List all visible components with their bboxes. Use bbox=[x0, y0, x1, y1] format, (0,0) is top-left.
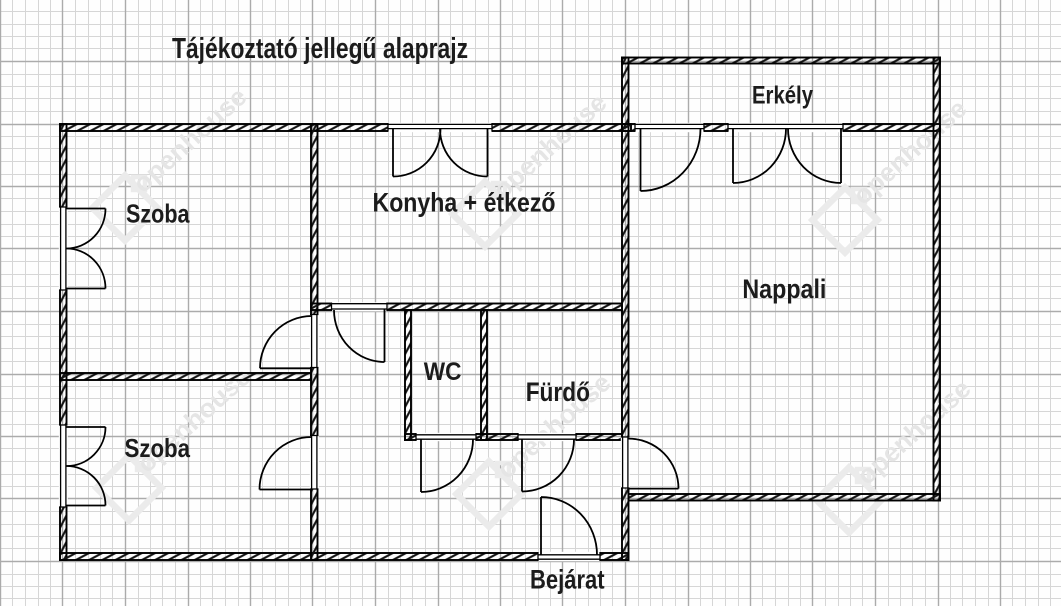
svg-text:Erkély: Erkély bbox=[752, 81, 813, 109]
svg-text:WC: WC bbox=[424, 358, 462, 386]
svg-text:Bejárat: Bejárat bbox=[530, 565, 605, 595]
svg-text:Konyha + étkező: Konyha + étkező bbox=[373, 188, 556, 218]
svg-text:Fürdő: Fürdő bbox=[526, 377, 590, 407]
svg-text:Szoba: Szoba bbox=[125, 433, 191, 463]
svg-text:Szoba: Szoba bbox=[126, 199, 190, 229]
svg-text:Tájékoztató jellegű alaprajz: Tájékoztató jellegű alaprajz bbox=[172, 33, 468, 65]
svg-text:Nappali: Nappali bbox=[742, 274, 826, 304]
